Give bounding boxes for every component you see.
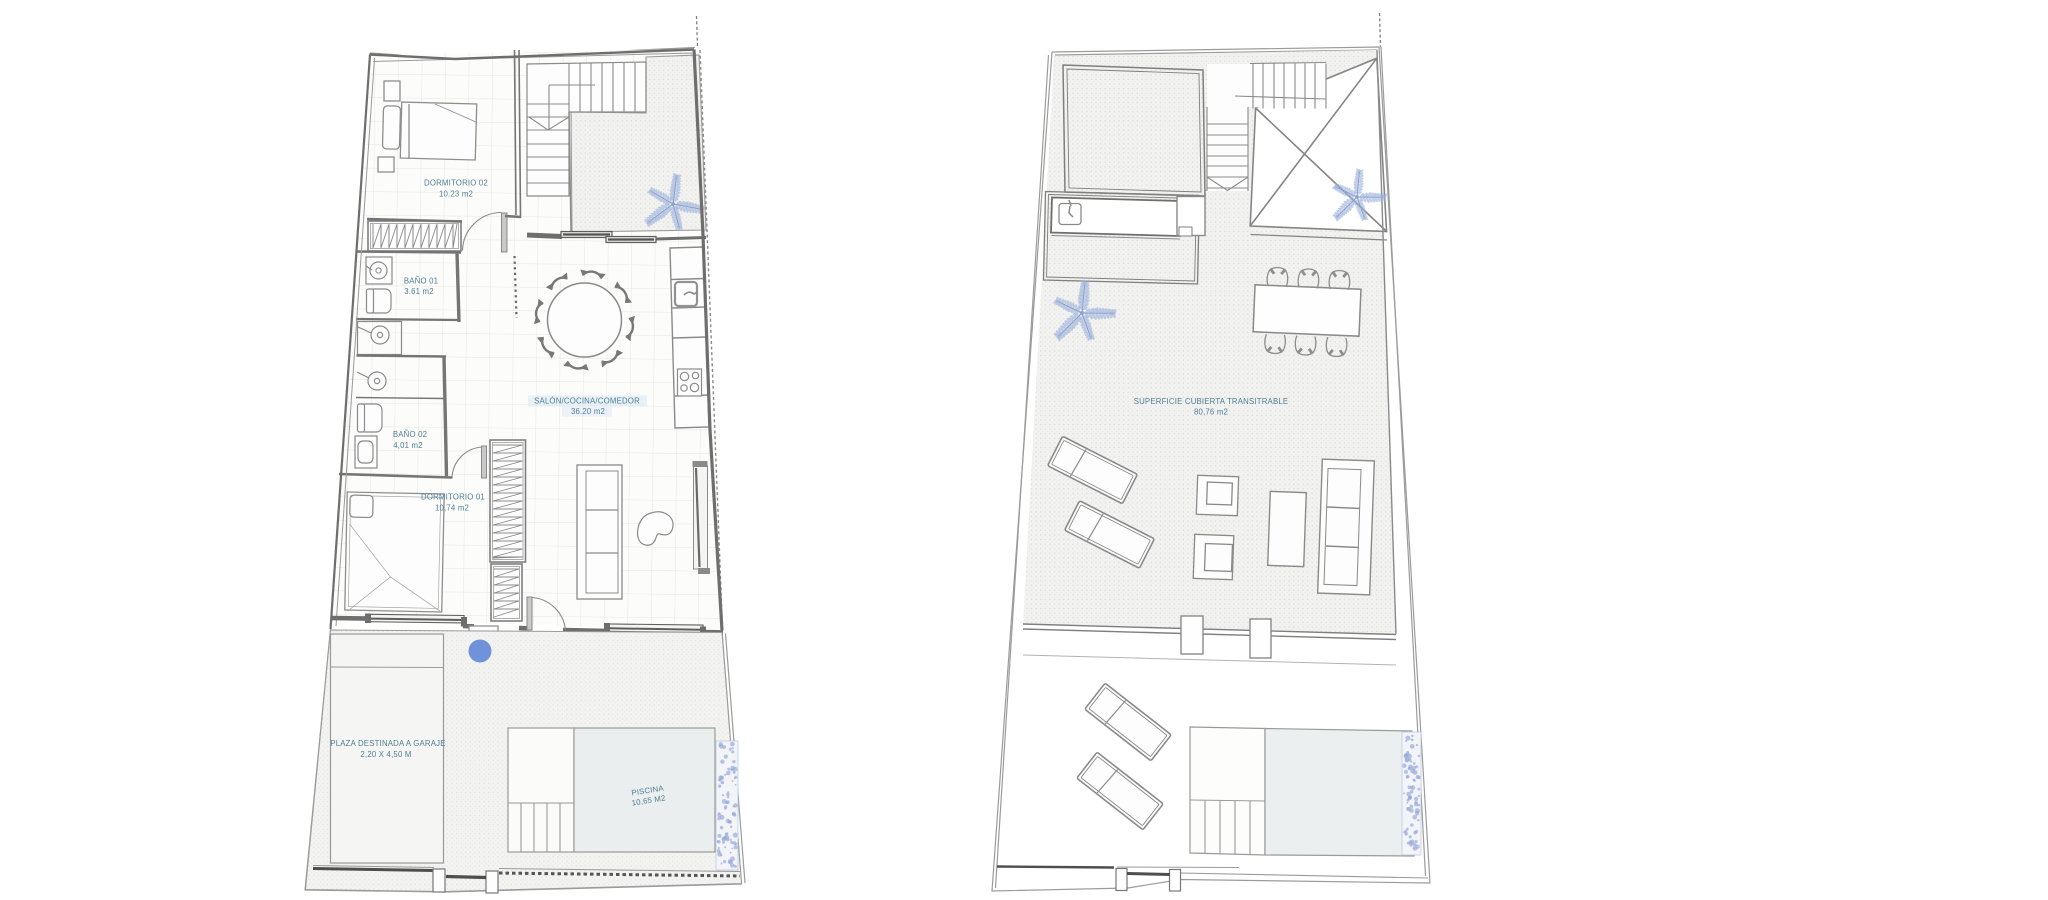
svg-text:SALÓN/COCINA/COMEDOR: SALÓN/COCINA/COMEDOR [534,397,640,406]
svg-text:BAÑO 02: BAÑO 02 [393,430,427,439]
svg-text:2,20 X 4,50 M: 2,20 X 4,50 M [360,750,411,759]
svg-text:PLAZA DESTINADA A GARAJE: PLAZA DESTINADA A GARAJE [330,739,445,748]
svg-text:SUPERFICIE CUBIERTA TRANSITRAB: SUPERFICIE CUBIERTA TRANSITRABLE [1134,397,1289,406]
svg-text:10,74 m2: 10,74 m2 [435,504,469,513]
svg-text:DORMITORIO 01: DORMITORIO 01 [421,493,485,502]
svg-text:10.23 m2: 10.23 m2 [439,190,473,199]
svg-text:BAÑO 01: BAÑO 01 [404,277,438,286]
svg-text:3.61 m2: 3.61 m2 [404,287,434,296]
svg-text:80,76 m2: 80,76 m2 [1194,408,1228,417]
svg-text:36.20 m2: 36.20 m2 [571,407,605,416]
svg-text:DORMITORIO 02: DORMITORIO 02 [424,179,488,188]
svg-text:4,01 m2: 4,01 m2 [393,441,423,450]
